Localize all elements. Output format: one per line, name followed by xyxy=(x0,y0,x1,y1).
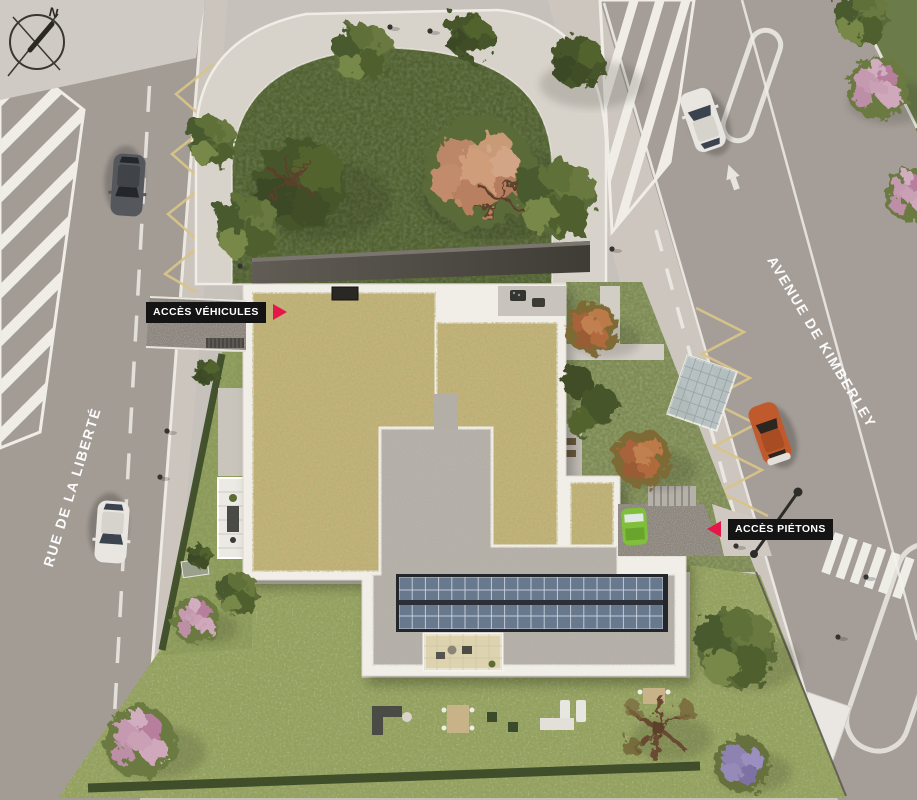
vehicle-access-text: ACCÈS VÉHICULES xyxy=(146,302,266,323)
site-plan-rendering xyxy=(0,0,917,800)
roof-terrace xyxy=(424,634,502,670)
pedestrian-access-text: ACCÈS PIÉTONS xyxy=(728,519,833,540)
vehicle-access-label: ACCÈS VÉHICULES xyxy=(146,302,288,323)
roof-skylight xyxy=(332,287,358,300)
vehicle-access-arrow-icon xyxy=(271,302,288,322)
pedestrian-access-arrow-icon xyxy=(706,519,723,539)
drive-grate xyxy=(206,338,244,348)
public-park xyxy=(187,10,606,284)
utility-vehicle-green xyxy=(621,507,649,546)
solar-panel-array xyxy=(396,574,668,632)
rooftop-hvac-unit xyxy=(532,298,545,307)
pedestrian-access-label: ACCÈS PIÉTONS xyxy=(706,519,833,540)
site-plan: RUE DE LA LIBERTÉ AVENUE DE KIMBERLEY AC… xyxy=(0,0,917,800)
